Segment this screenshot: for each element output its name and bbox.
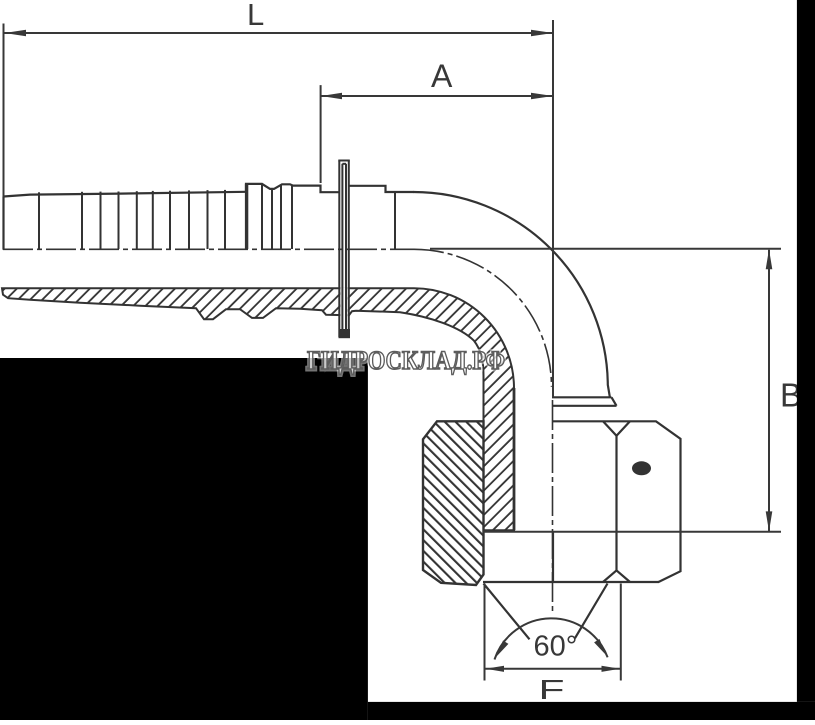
svg-text:L: L bbox=[247, 0, 264, 32]
svg-text:A: A bbox=[431, 58, 453, 94]
svg-text:F: F bbox=[539, 674, 565, 705]
svg-text:60°: 60° bbox=[534, 631, 578, 663]
svg-text:ГИДРОСКЛАД.РФ: ГИДРОСКЛАД.РФ bbox=[307, 346, 505, 375]
